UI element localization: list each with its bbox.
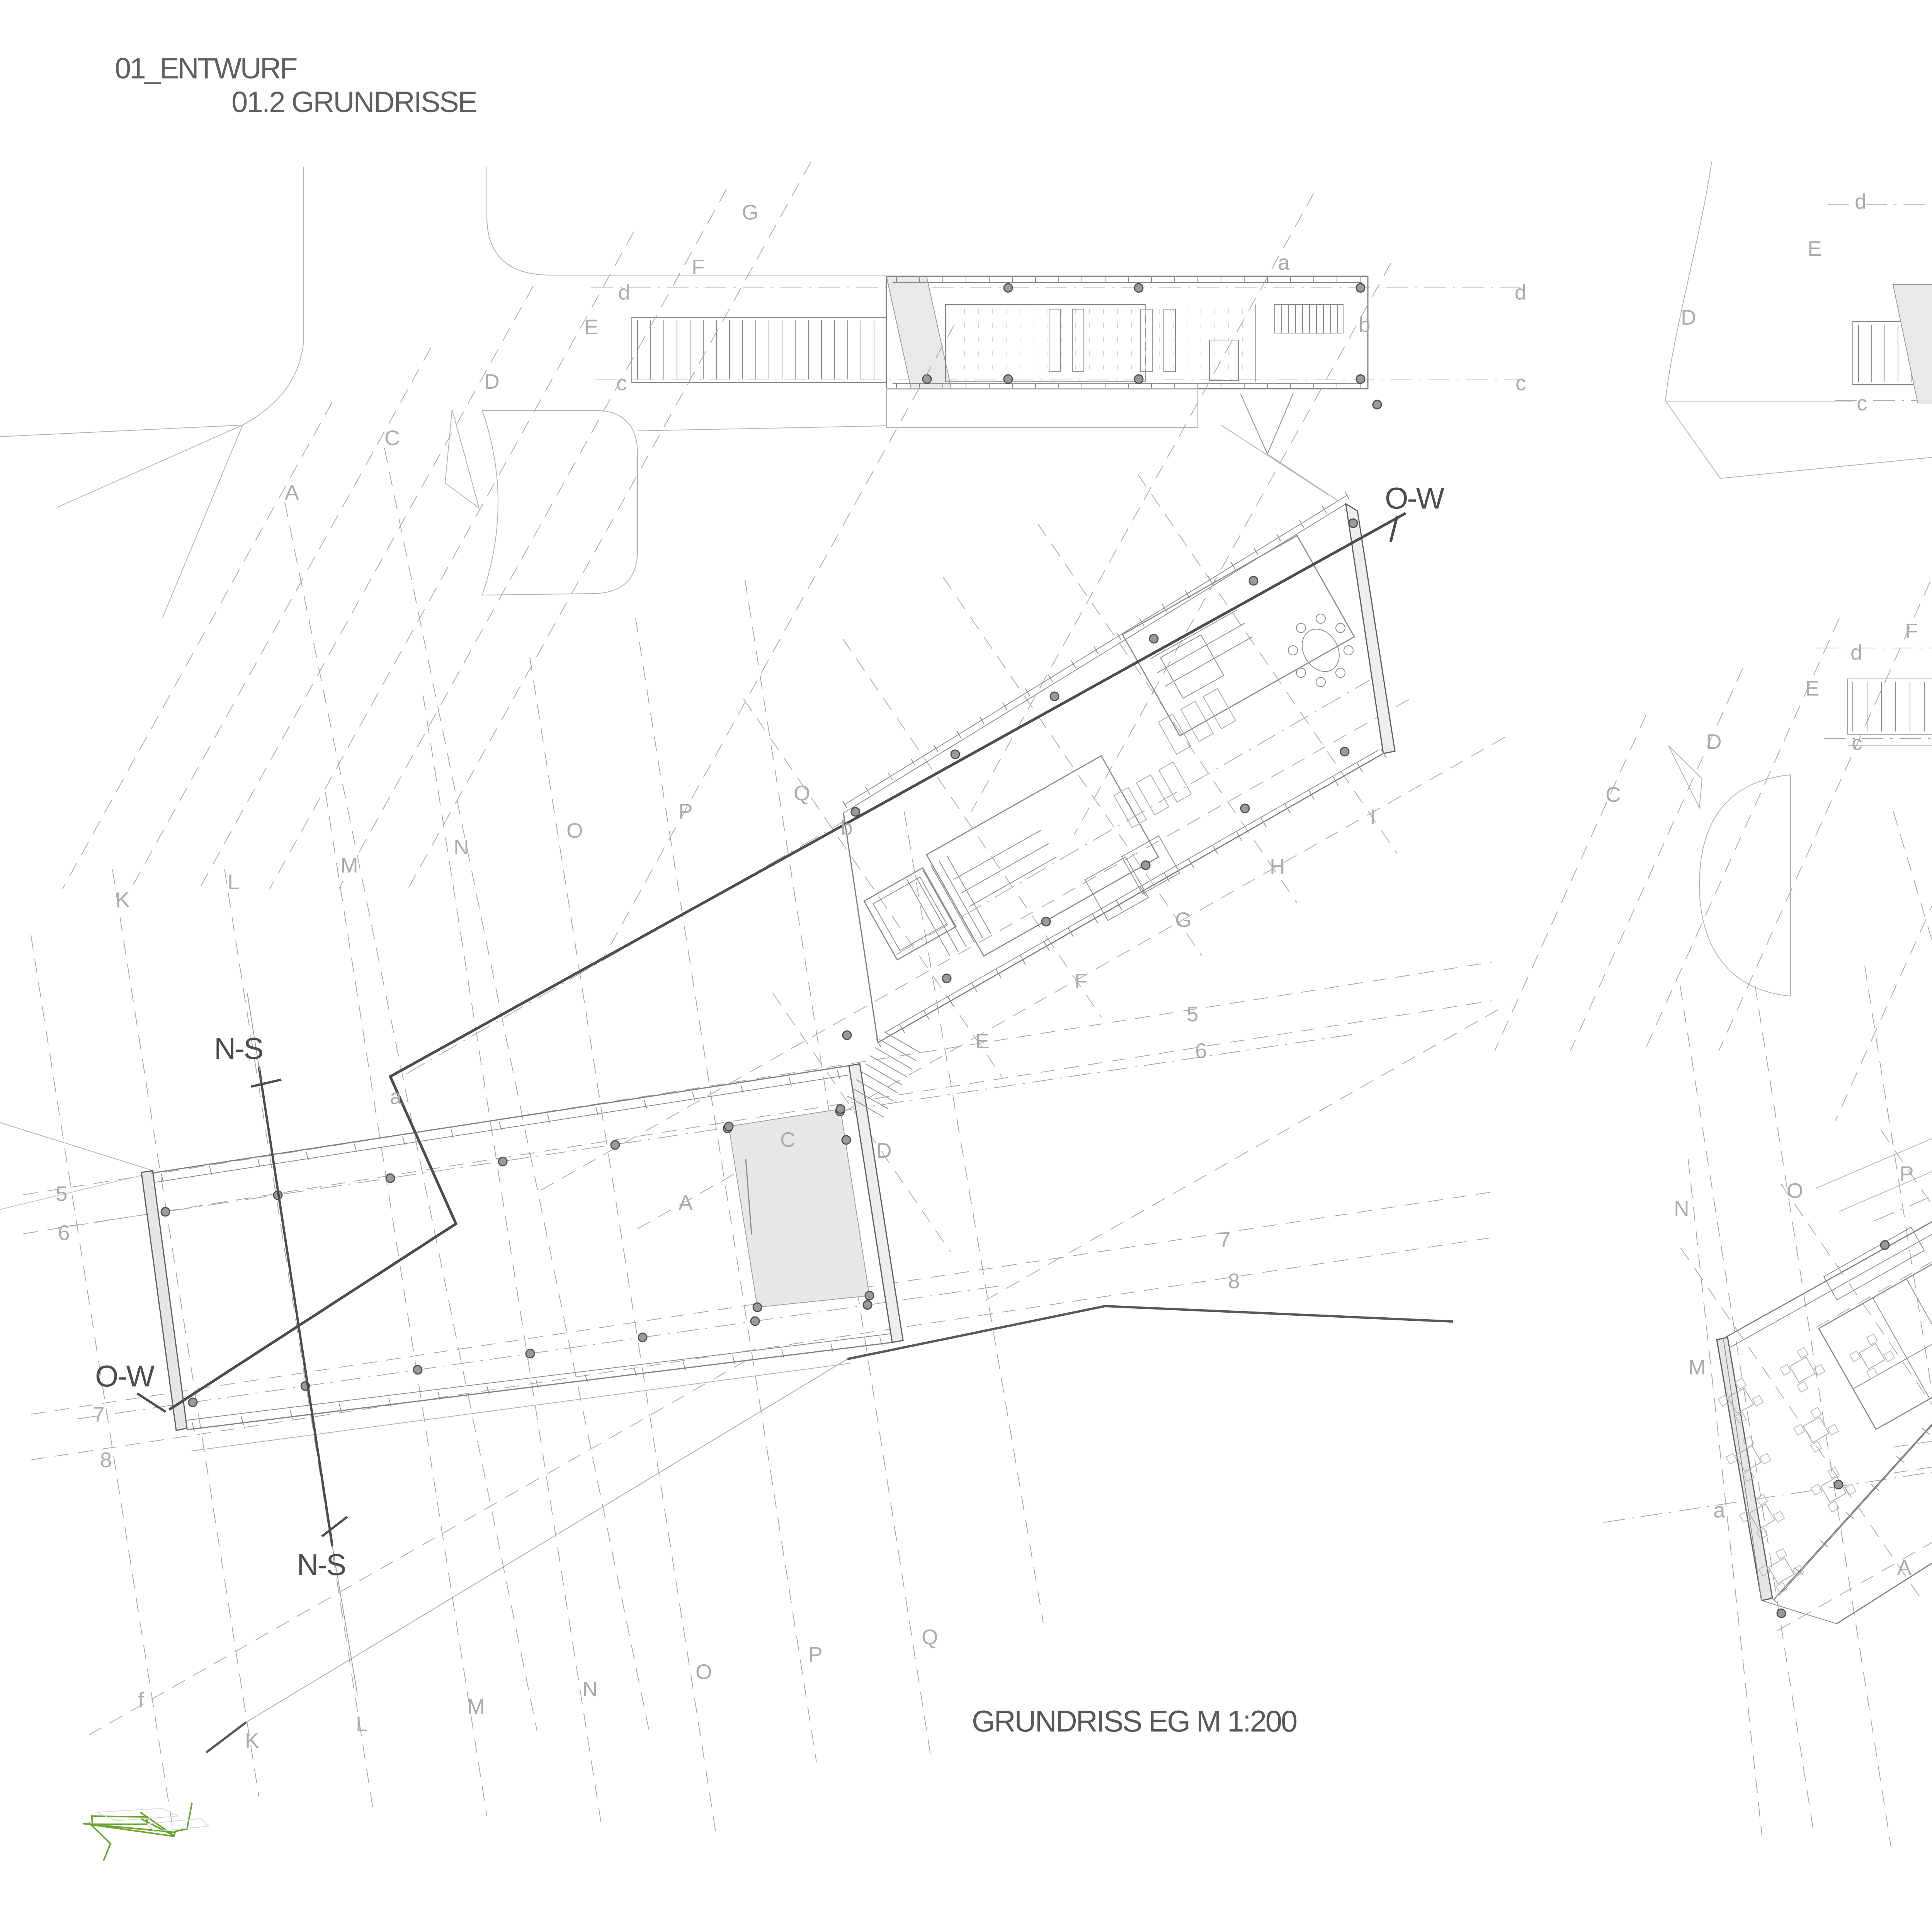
svg-text:N: N: [454, 835, 469, 859]
svg-text:c: c: [616, 371, 627, 395]
svg-text:N: N: [1674, 1196, 1689, 1220]
svg-text:8: 8: [100, 1448, 112, 1472]
svg-text:E: E: [1805, 676, 1820, 700]
svg-text:7: 7: [93, 1402, 105, 1426]
svg-text:01.2 GRUNDRISSE: 01.2 GRUNDRISSE: [231, 86, 476, 119]
svg-text:F: F: [1905, 619, 1918, 643]
svg-text:b: b: [1359, 313, 1371, 337]
svg-text:A: A: [679, 1191, 693, 1214]
svg-text:D: D: [1681, 305, 1696, 329]
svg-text:8: 8: [1228, 1269, 1240, 1293]
svg-text:c: c: [1857, 391, 1867, 415]
svg-text:O-W: O-W: [1385, 481, 1445, 515]
svg-text:A: A: [285, 480, 299, 504]
svg-text:D: D: [1706, 730, 1722, 754]
svg-text:5: 5: [56, 1182, 68, 1206]
svg-text:7: 7: [1219, 1228, 1231, 1252]
svg-text:d: d: [1850, 640, 1862, 664]
svg-text:f: f: [138, 1688, 144, 1712]
svg-text:d: d: [1515, 280, 1527, 304]
svg-text:P: P: [679, 799, 693, 823]
svg-text:F: F: [1075, 969, 1088, 993]
svg-text:N-S: N-S: [214, 1031, 262, 1065]
svg-text:O-W: O-W: [95, 1359, 155, 1393]
svg-text:b: b: [841, 815, 853, 839]
svg-text:a: a: [390, 1085, 402, 1109]
svg-text:d: d: [1855, 189, 1867, 213]
svg-text:O: O: [1787, 1179, 1803, 1203]
svg-text:E: E: [584, 315, 599, 339]
svg-text:G: G: [1175, 908, 1192, 932]
svg-text:M: M: [340, 853, 358, 877]
svg-text:F: F: [692, 255, 705, 279]
svg-text:E: E: [1808, 236, 1822, 260]
svg-text:01_ENTWURF: 01_ENTWURF: [115, 52, 297, 85]
svg-text:a: a: [1278, 250, 1290, 274]
svg-text:P: P: [808, 1642, 823, 1666]
svg-text:d: d: [618, 280, 630, 304]
svg-text:C: C: [1605, 782, 1621, 806]
svg-text:A: A: [1897, 1555, 1912, 1579]
svg-text:K: K: [245, 1728, 259, 1752]
svg-text:D: D: [876, 1138, 892, 1162]
svg-text:K: K: [116, 888, 130, 912]
svg-text:O: O: [696, 1660, 712, 1684]
svg-text:G: G: [742, 200, 759, 224]
svg-text:E: E: [975, 1029, 990, 1053]
svg-text:L: L: [356, 1712, 368, 1736]
svg-text:Q: Q: [922, 1625, 938, 1649]
svg-text:N: N: [582, 1677, 598, 1701]
svg-text:6: 6: [58, 1221, 70, 1245]
svg-text:L: L: [228, 870, 240, 894]
svg-text:a: a: [1713, 1498, 1725, 1522]
svg-text:C: C: [780, 1128, 796, 1152]
svg-text:P: P: [1900, 1162, 1914, 1186]
svg-text:GRUNDRISS EG M 1:200: GRUNDRISS EG M 1:200: [972, 1704, 1297, 1738]
svg-text:5: 5: [1187, 1002, 1199, 1026]
svg-text:6: 6: [1195, 1039, 1207, 1063]
svg-text:C: C: [384, 426, 400, 450]
svg-text:M: M: [467, 1694, 485, 1718]
svg-text:N-S: N-S: [297, 1548, 345, 1582]
svg-text:c: c: [1515, 371, 1526, 395]
svg-text:D: D: [484, 369, 500, 393]
svg-text:O: O: [566, 818, 583, 842]
svg-text:M: M: [1688, 1355, 1706, 1379]
svg-text:Q: Q: [794, 781, 810, 805]
svg-text:H: H: [1270, 854, 1285, 878]
svg-text:I: I: [1370, 805, 1376, 829]
